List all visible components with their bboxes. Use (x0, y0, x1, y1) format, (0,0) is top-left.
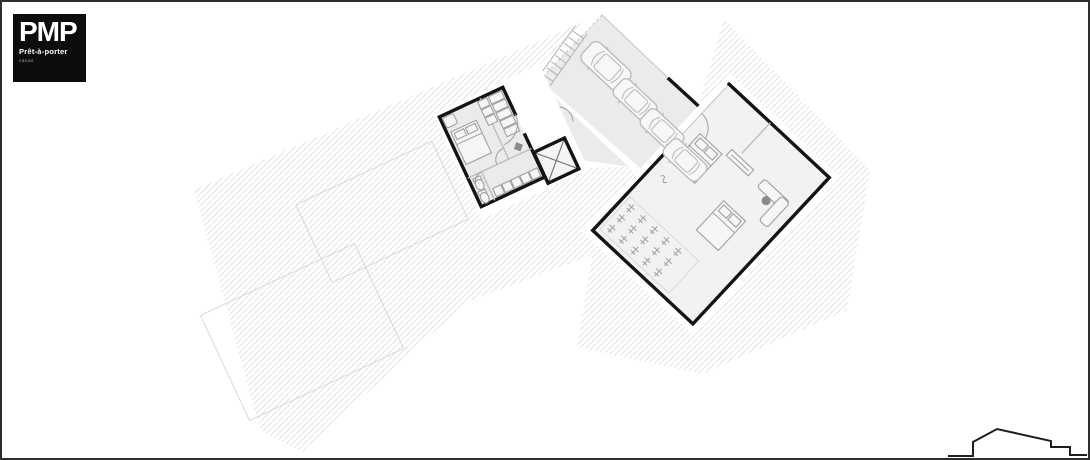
logo-tagline: casas (19, 58, 80, 63)
elevation-profile (948, 429, 1087, 456)
brand-logo: PMP Prêt-à-porter casas (13, 14, 86, 82)
floor-plan-drawing (2, 2, 1088, 458)
drawing-canvas: PMP Prêt-à-porter casas (0, 0, 1090, 460)
logo-acronym: PMP (19, 19, 80, 44)
logo-brand-name: Prêt-à-porter (19, 47, 80, 56)
